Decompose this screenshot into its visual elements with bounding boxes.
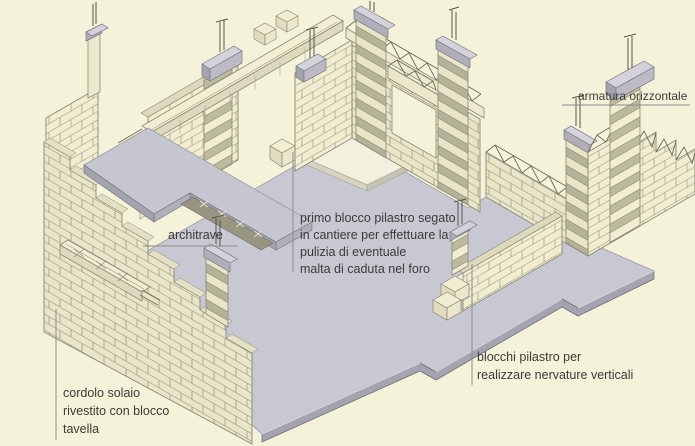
label-blocchi-pilastro-line1: blocchi pilastro per: [477, 350, 581, 364]
label-primo-blocco-line3: pulizia di eventuale: [300, 245, 406, 259]
banded-pillar: [438, 46, 468, 205]
label-cordolo-solaio-line1: cordolo solaio: [63, 386, 140, 400]
label-primo-blocco-line4: malta di caduta nel foro: [300, 262, 430, 276]
label-primo-blocco-line2: in cantiere per effettuare la: [300, 228, 449, 242]
construction-diagram: armatura orizzontale architrave primo bl…: [0, 0, 695, 446]
label-primo-blocco-line1: primo blocco pilastro segato: [300, 211, 456, 225]
label-armatura-orizzontale: armatura orizzontale: [578, 89, 688, 103]
label-blocchi-pilastro-line2: realizzare nervature verticali: [477, 368, 633, 382]
label-cordolo-solaio-line2: rivestito con blocco: [63, 404, 169, 418]
label-cordolo-solaio-line3: tavella: [63, 422, 99, 436]
label-architrave: architrave: [168, 228, 223, 242]
banded-pillar: [566, 135, 588, 256]
diagram-canvas: armatura orizzontale architrave primo bl…: [0, 0, 695, 446]
banded-pillar: [356, 17, 386, 158]
